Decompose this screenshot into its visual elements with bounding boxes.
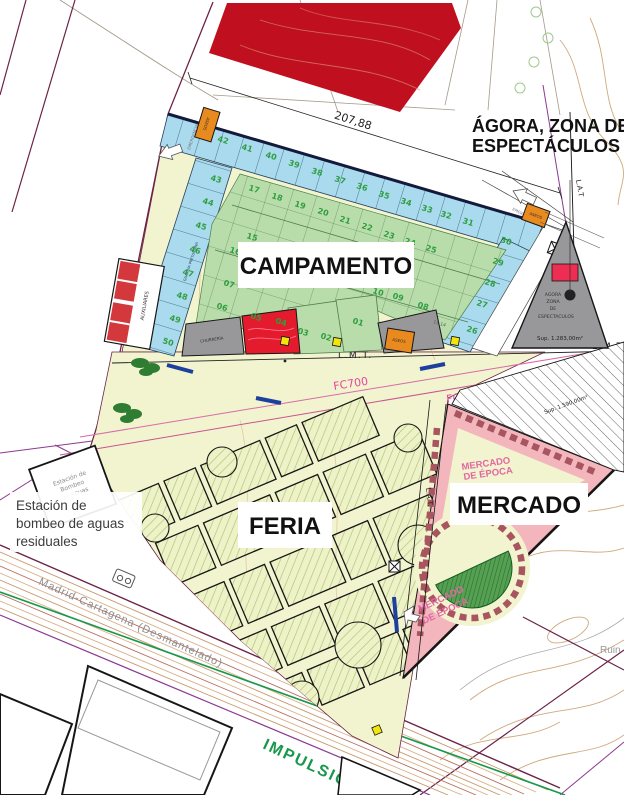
pump-note-line3: residuales	[16, 534, 78, 549]
agora-title-line1: ÁGORA, ZONA DE	[472, 115, 624, 136]
feria-label: FERIA	[249, 513, 321, 540]
ruins-label: Ruin	[600, 645, 621, 656]
agora-stage	[552, 264, 578, 281]
agora-area-label: Sup. 1.283,00m²	[537, 335, 583, 342]
mercado-label: MERCADO	[457, 492, 581, 519]
crossing-symbol	[389, 561, 400, 572]
agora-title-line2: ESPECTÁCULOS	[472, 135, 620, 156]
pump-note-line1: Estación de	[16, 498, 87, 513]
campamento-label: CAMPAMENTO	[240, 253, 412, 280]
pump-note-line2: bombeo de aguas	[16, 516, 124, 531]
site-plan: Madrid-Cartagena (Desmantelado) IMPULSIÓ…	[0, 0, 624, 795]
agora-tri-line4: ESPECTACULOS	[538, 314, 574, 320]
agora-tri-line1: AGORA	[545, 292, 562, 298]
site-plan-drawing: Madrid-Cartagena (Desmantelado) IMPULSIÓ…	[0, 0, 624, 795]
agora-tri-line2: ZONA	[546, 299, 560, 305]
aseos-strip: ASEOS	[385, 328, 415, 353]
agora-tri-line3: DE	[550, 306, 557, 312]
